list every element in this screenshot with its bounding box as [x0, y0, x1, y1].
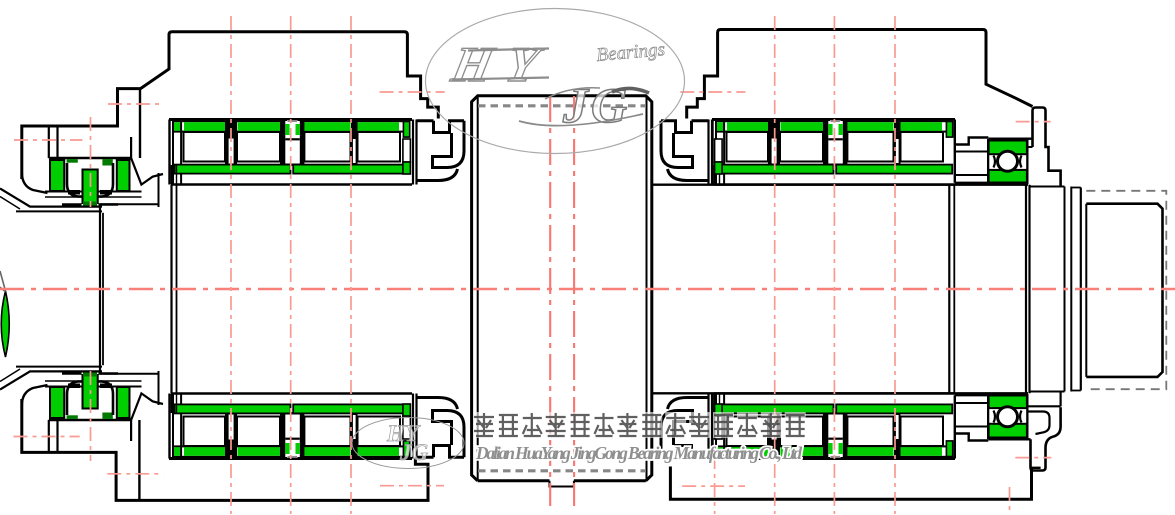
svg-text:HY: HY: [446, 36, 558, 91]
svg-text:Dalian HuaYang JingGong Bearin: Dalian HuaYang JingGong Bearing Manufact…: [475, 443, 802, 463]
svg-text:JG: JG: [399, 440, 429, 465]
